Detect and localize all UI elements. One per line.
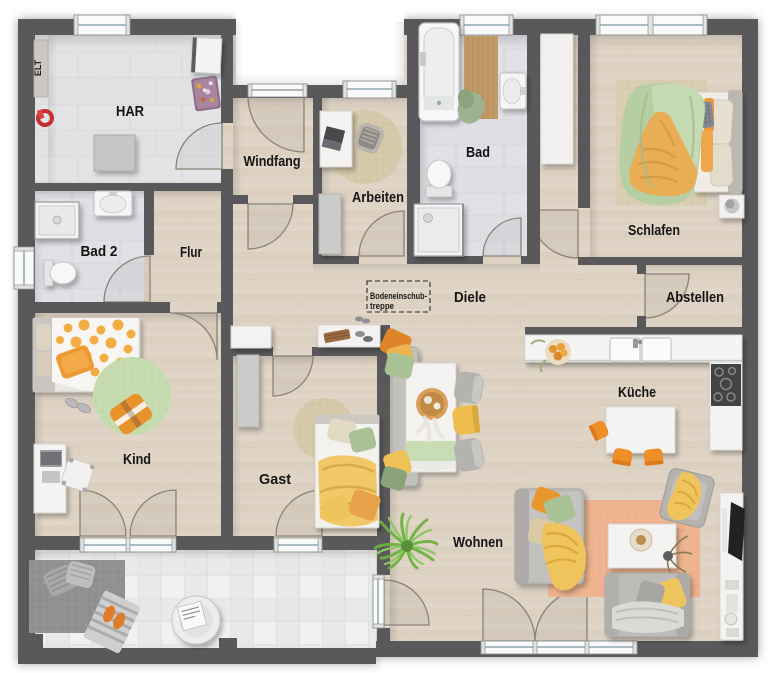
svg-text:Küche: Küche <box>618 384 656 401</box>
svg-text:Wohnen: Wohnen <box>453 534 503 551</box>
svg-text:Bad: Bad <box>466 144 490 161</box>
svg-text:Gast: Gast <box>259 471 291 488</box>
svg-text:ELT: ELT <box>33 59 43 76</box>
svg-text:Abstellen: Abstellen <box>666 289 724 306</box>
svg-text:Arbeiten: Arbeiten <box>352 189 404 206</box>
svg-text:Flur: Flur <box>180 244 202 261</box>
svg-text:Windfang: Windfang <box>244 153 301 170</box>
svg-text:Schlafen: Schlafen <box>628 222 680 239</box>
svg-text:treppe: treppe <box>370 301 394 312</box>
svg-text:HAR: HAR <box>116 103 144 120</box>
svg-text:Kind: Kind <box>123 451 151 468</box>
svg-text:Bad 2: Bad 2 <box>81 243 118 260</box>
svg-text:Diele: Diele <box>454 289 486 306</box>
